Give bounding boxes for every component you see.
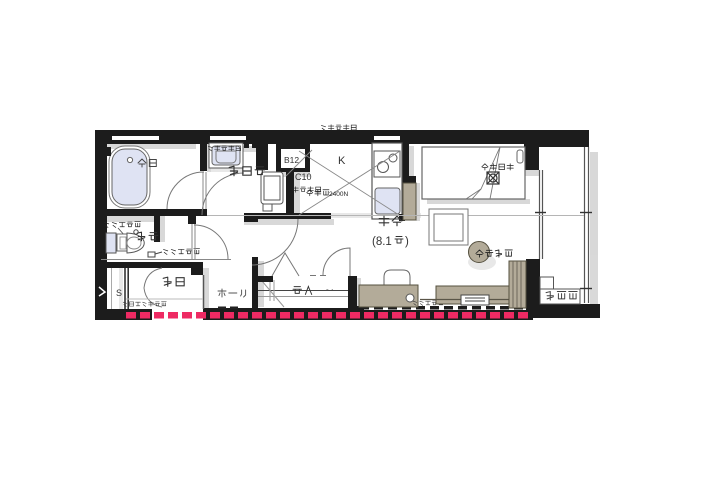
svg-text:C10: C10 [295, 172, 312, 182]
svg-text:K: K [338, 155, 346, 167]
svg-text:): ) [405, 236, 409, 248]
svg-text:- ·: - · [326, 285, 334, 294]
svg-text:S: S [116, 288, 122, 298]
svg-text:(8.1: (8.1 [372, 236, 392, 248]
svg-text:B12: B12 [284, 155, 299, 165]
svg-text:2400N: 2400N [329, 191, 348, 198]
